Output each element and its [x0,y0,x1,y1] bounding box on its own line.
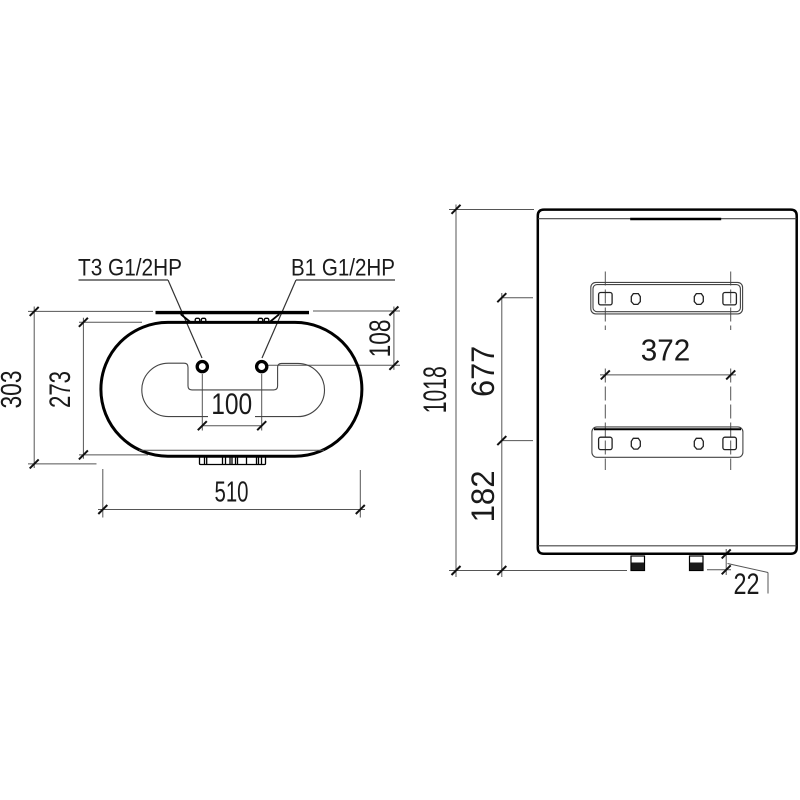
svg-text:303: 303 [0,371,28,409]
svg-text:100: 100 [211,388,252,421]
svg-text:182: 182 [465,470,501,522]
svg-text:T3 G1/2HP: T3 G1/2HP [78,255,182,282]
svg-text:1018: 1018 [417,366,453,413]
svg-text:22: 22 [734,568,760,601]
svg-text:677: 677 [465,346,501,397]
svg-text:108: 108 [364,319,397,357]
svg-text:B1 G1/2HP: B1 G1/2HP [291,255,395,282]
svg-text:273: 273 [44,371,77,408]
svg-text:372: 372 [641,332,691,367]
svg-text:510: 510 [215,477,249,509]
